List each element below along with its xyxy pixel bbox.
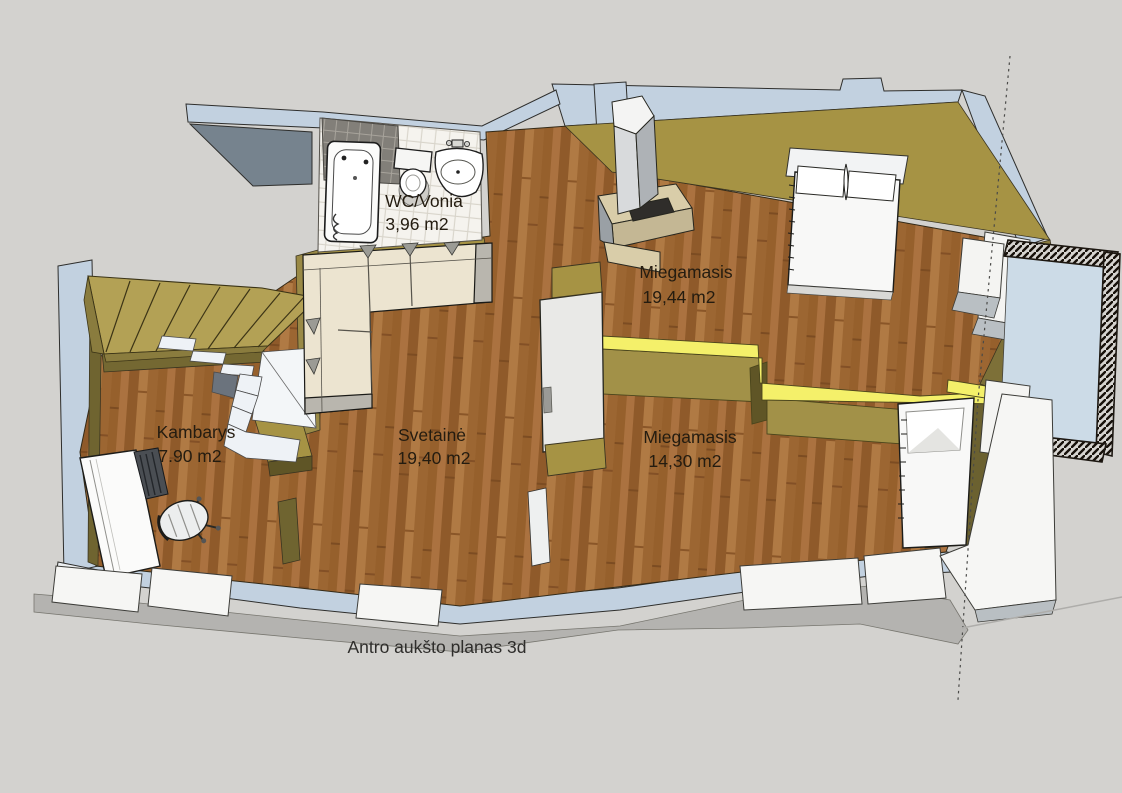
floorplan-render: WC/Vonia 3,96 m2 Miegamasis 19,44 m2 Kam… (0, 0, 1122, 793)
label-wc-area: 3,96 m2 (385, 214, 448, 234)
label-bedroom2-name: Miegamasis (643, 427, 737, 447)
balcony-pier-north (958, 238, 1004, 298)
label-bedroom2-area: 14,30 m2 (649, 451, 722, 471)
label-wc-name: WC/Vonia (385, 191, 463, 211)
pillow-gap (844, 164, 848, 200)
plan-caption: Antro aukšto planas 3d (347, 637, 526, 657)
label-svetaine-area: 19,40 m2 (398, 448, 471, 468)
label-kambarys-area: 7.90 m2 (158, 446, 221, 466)
chimney (612, 96, 658, 214)
floorplan-svg: WC/Vonia 3,96 m2 Miegamasis 19,44 m2 Kam… (0, 0, 1122, 793)
double-bed (786, 148, 908, 300)
single-bed (898, 398, 974, 548)
label-bedroom1-name: Miegamasis (639, 262, 733, 282)
label-bedroom1-area: 19,44 m2 (643, 287, 716, 307)
bathtub (324, 141, 380, 243)
faucet (452, 140, 463, 147)
label-kambarys-name: Kambarys (157, 422, 236, 442)
label-svetaine-name: Svetainė (398, 425, 466, 445)
